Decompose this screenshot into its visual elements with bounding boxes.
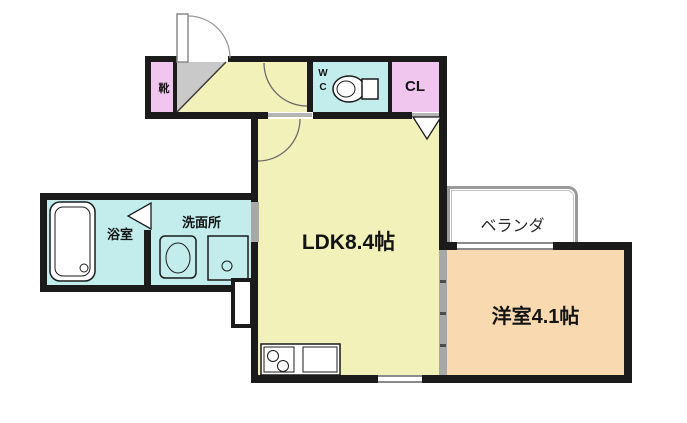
veranda-label: ベランダ — [447, 212, 578, 236]
ldk-door-icon — [258, 119, 300, 161]
fixtures-overlay — [0, 0, 687, 423]
wc-label-line1: W — [313, 67, 333, 81]
closet-bifold-door-icon — [413, 117, 441, 139]
wc-label-line2: C — [313, 81, 333, 95]
genkan-step — [177, 62, 226, 112]
washing-machine-icon — [160, 236, 196, 278]
bathtub-icon — [50, 202, 95, 281]
toilet-icon — [333, 76, 378, 102]
bathroom-label: 浴室 — [92, 224, 148, 243]
closet-label: CL — [391, 78, 439, 95]
shoe-cabinet-label: 靴 — [151, 80, 177, 96]
washroom-sink-icon — [208, 236, 248, 280]
wc-label: W C — [313, 67, 333, 95]
entrance-door-icon — [177, 14, 230, 62]
ldk-label: LDK8.4帖 — [258, 226, 439, 256]
hall-door-icon — [264, 63, 307, 106]
kitchen-counter-icon — [261, 344, 340, 375]
floor-plan: LDK8.4帖 洋室4.1帖 ベランダ 洗面所 浴室 CL W C 靴 — [0, 0, 687, 423]
washroom-label: 洗面所 — [151, 212, 252, 231]
western-room-label: 洋室4.1帖 — [447, 300, 624, 329]
